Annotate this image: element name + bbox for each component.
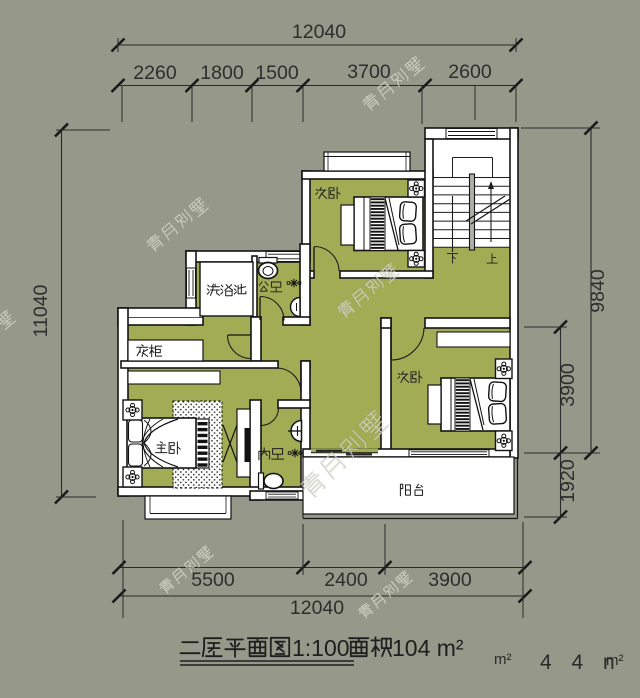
svg-text:1920: 1920 [557,459,579,503]
svg-text:m²: m² [606,652,624,669]
svg-text:2600: 2600 [448,61,492,83]
svg-text:12040: 12040 [290,597,344,619]
svg-text:11040: 11040 [30,284,52,337]
svg-text:1500: 1500 [255,62,299,84]
svg-text:1:100: 1:100 [292,635,350,661]
svg-text:m²: m² [494,651,512,668]
svg-text:2260: 2260 [133,62,177,84]
svg-text:1800: 1800 [200,62,244,84]
svg-text:3900: 3900 [428,569,472,591]
svg-text:3900: 3900 [557,363,579,407]
svg-text:5500: 5500 [191,569,235,591]
svg-text:12040: 12040 [292,21,346,43]
svg-text:2400: 2400 [324,569,368,591]
svg-text:3700: 3700 [347,61,391,83]
svg-text:104 m²: 104 m² [392,635,464,661]
svg-text:9840: 9840 [587,269,609,313]
